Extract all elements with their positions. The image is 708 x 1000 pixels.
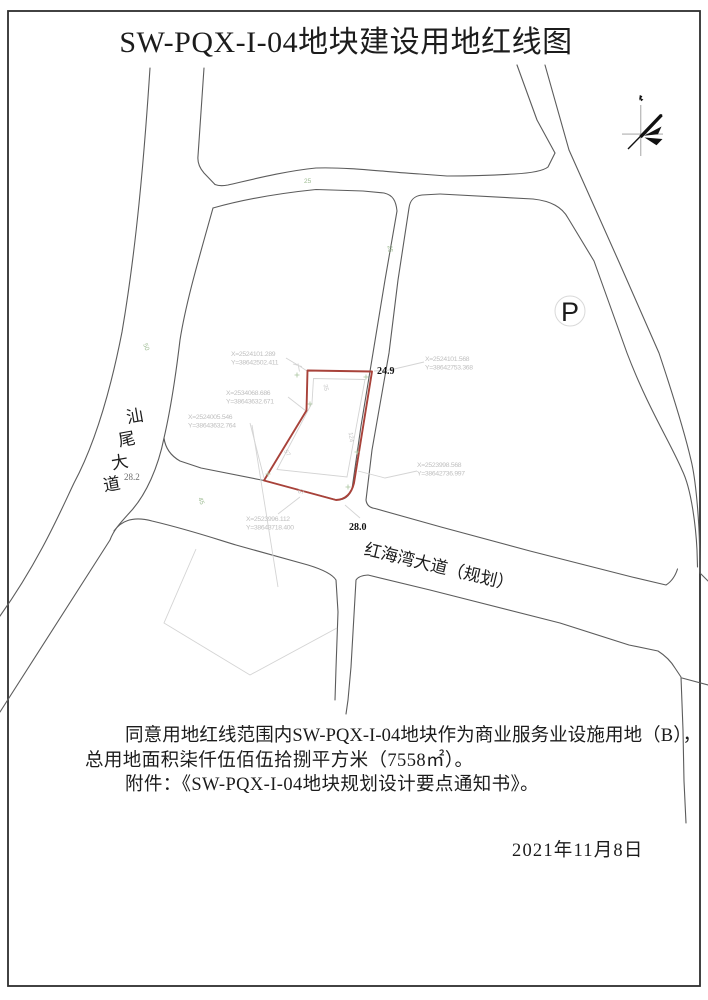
svg-text:Y=38643632.671: Y=38643632.671 [226, 399, 274, 406]
svg-text:28.0: 28.0 [349, 522, 367, 533]
svg-text:X=2524101.289: X=2524101.289 [231, 351, 276, 358]
svg-text:45: 45 [196, 496, 205, 506]
svg-text:Y=38642502.411: Y=38642502.411 [231, 360, 279, 367]
svg-text:35: 35 [322, 384, 329, 392]
svg-text:28.2: 28.2 [124, 472, 140, 482]
svg-text:50: 50 [141, 342, 150, 352]
svg-text:124: 124 [347, 432, 354, 443]
svg-text:25: 25 [386, 245, 394, 254]
svg-text:Y=38643632.764: Y=38643632.764 [188, 423, 236, 430]
svg-text:25: 25 [304, 178, 312, 185]
svg-text:67: 67 [297, 489, 305, 496]
svg-text:X=2524101.568: X=2524101.568 [425, 356, 470, 363]
svg-text:Y=38642753.368: Y=38642753.368 [425, 365, 473, 372]
svg-text:X=2523998.568: X=2523998.568 [417, 462, 462, 469]
svg-text:Y=38643718.400: Y=38643718.400 [246, 525, 294, 532]
svg-text:X=2524005.546: X=2524005.546 [188, 414, 233, 421]
svg-text:X=2523996.112: X=2523996.112 [246, 516, 290, 523]
svg-text:X=2534068.686: X=2534068.686 [226, 390, 271, 397]
svg-text:P: P [561, 297, 579, 327]
svg-text:Y=38642736.997: Y=38642736.997 [417, 471, 465, 478]
svg-text:24.9: 24.9 [377, 366, 395, 377]
